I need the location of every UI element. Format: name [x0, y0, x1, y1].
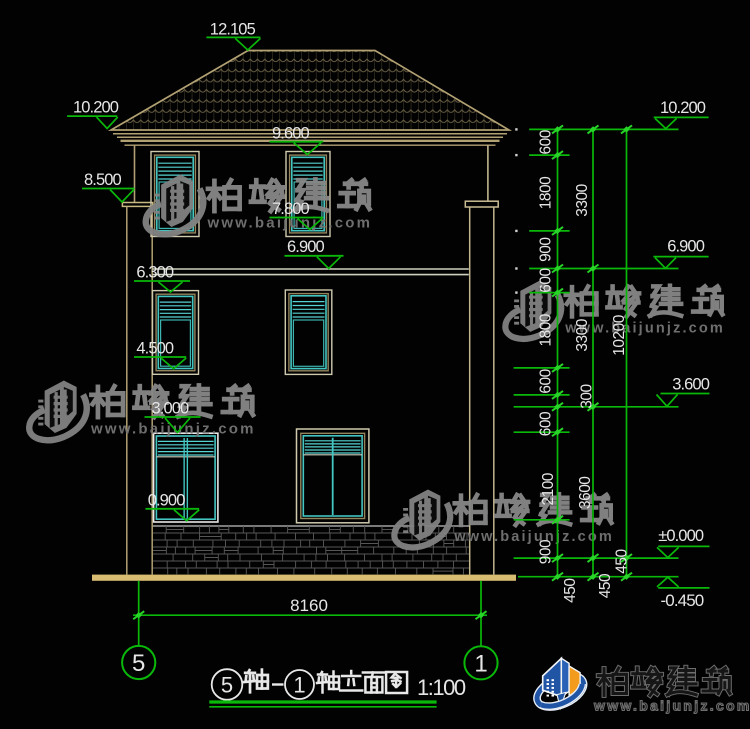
svg-text:2100: 2100	[540, 472, 557, 505]
svg-text:600: 600	[538, 129, 555, 154]
svg-text:10200: 10200	[611, 314, 628, 355]
svg-text:6.900: 6.900	[667, 238, 705, 256]
svg-text:www.baijunjz.com: www.baijunjz.com	[593, 698, 750, 714]
svg-text:0.900: 0.900	[148, 492, 186, 510]
svg-text:10.200: 10.200	[73, 99, 119, 117]
svg-text:450: 450	[562, 578, 579, 603]
svg-text:1800: 1800	[538, 313, 555, 346]
svg-text:7.800: 7.800	[272, 200, 310, 218]
svg-text:4.500: 4.500	[136, 340, 174, 358]
svg-text:3600: 3600	[577, 476, 594, 509]
svg-text:8160: 8160	[290, 596, 328, 615]
svg-text:600: 600	[538, 411, 555, 436]
svg-text:12.105: 12.105	[210, 21, 256, 39]
svg-text:1: 1	[293, 673, 305, 698]
svg-text:900: 900	[538, 237, 555, 262]
svg-text:6.900: 6.900	[287, 238, 325, 256]
svg-text:www.baijunjz.com: www.baijunjz.com	[90, 421, 256, 438]
svg-text:±0.000: ±0.000	[658, 527, 704, 545]
svg-text:3300: 3300	[574, 183, 591, 216]
svg-text:8.500: 8.500	[84, 171, 122, 189]
svg-text:900: 900	[538, 539, 555, 564]
svg-text:3.000: 3.000	[152, 400, 190, 418]
svg-text:600: 600	[538, 368, 555, 393]
svg-text:300: 300	[579, 383, 596, 408]
svg-text:3.600: 3.600	[672, 376, 710, 394]
svg-text:9.600: 9.600	[272, 125, 310, 143]
svg-text:-0.450: -0.450	[661, 591, 704, 610]
svg-text:5: 5	[132, 650, 145, 677]
svg-text:6.300: 6.300	[136, 264, 174, 282]
svg-text:450: 450	[597, 573, 614, 598]
svg-text:600: 600	[538, 267, 555, 292]
svg-text:www.baijunjz.com: www.baijunjz.com	[453, 529, 614, 545]
svg-text:1800: 1800	[538, 176, 555, 209]
svg-text:1:100: 1:100	[417, 675, 466, 700]
svg-text:3300: 3300	[574, 318, 591, 351]
svg-text:5: 5	[221, 673, 233, 698]
svg-text:450: 450	[614, 548, 631, 573]
svg-text:1: 1	[474, 650, 487, 677]
svg-text:10.200: 10.200	[660, 99, 706, 117]
